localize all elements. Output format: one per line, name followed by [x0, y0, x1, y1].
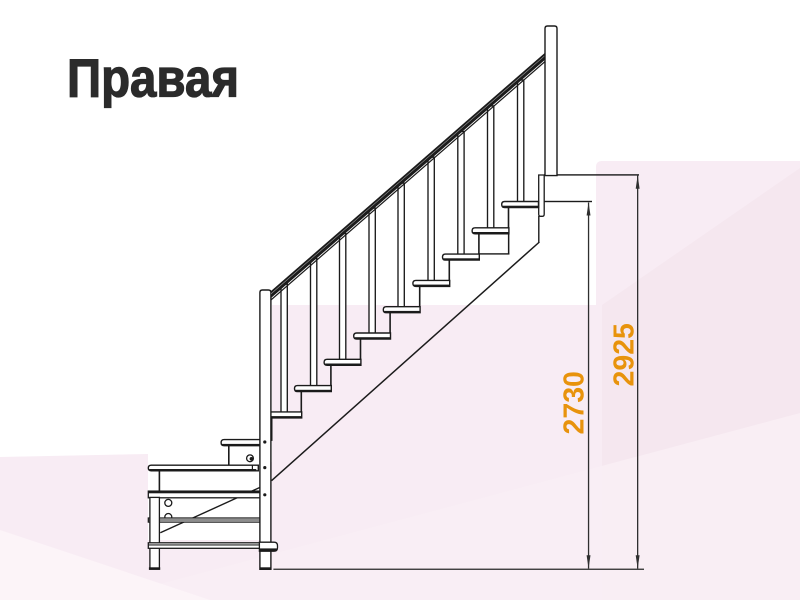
- svg-text:2730: 2730: [559, 371, 591, 434]
- svg-text:Правая: Правая: [67, 49, 239, 109]
- svg-text:2925: 2925: [609, 323, 641, 387]
